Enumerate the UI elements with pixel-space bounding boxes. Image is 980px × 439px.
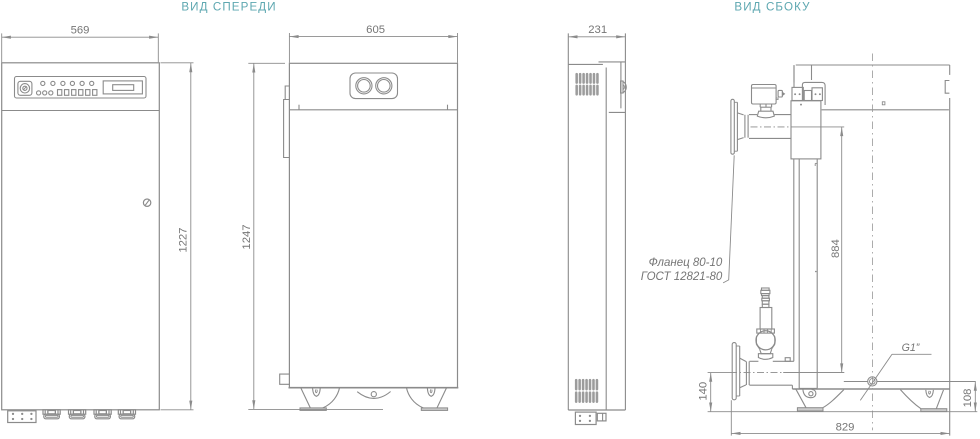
svg-text:ВИД СПЕРЕДИ: ВИД СПЕРЕДИ bbox=[181, 1, 276, 14]
svg-text:884: 884 bbox=[830, 239, 842, 258]
svg-text:1227: 1227 bbox=[177, 228, 189, 253]
svg-text:G1”: G1” bbox=[902, 342, 920, 354]
svg-text:231: 231 bbox=[588, 24, 607, 36]
svg-text:ГОСТ 12821-80: ГОСТ 12821-80 bbox=[641, 271, 723, 283]
svg-text:140: 140 bbox=[697, 382, 709, 401]
svg-text:Фланец 80-10: Фланец 80-10 bbox=[649, 257, 723, 269]
svg-text:605: 605 bbox=[366, 24, 385, 36]
svg-text:108: 108 bbox=[962, 389, 974, 408]
svg-text:829: 829 bbox=[836, 421, 855, 433]
svg-text:ВИД СБОКУ: ВИД СБОКУ bbox=[734, 1, 810, 14]
svg-text:569: 569 bbox=[71, 24, 90, 36]
svg-text:1247: 1247 bbox=[241, 224, 253, 249]
